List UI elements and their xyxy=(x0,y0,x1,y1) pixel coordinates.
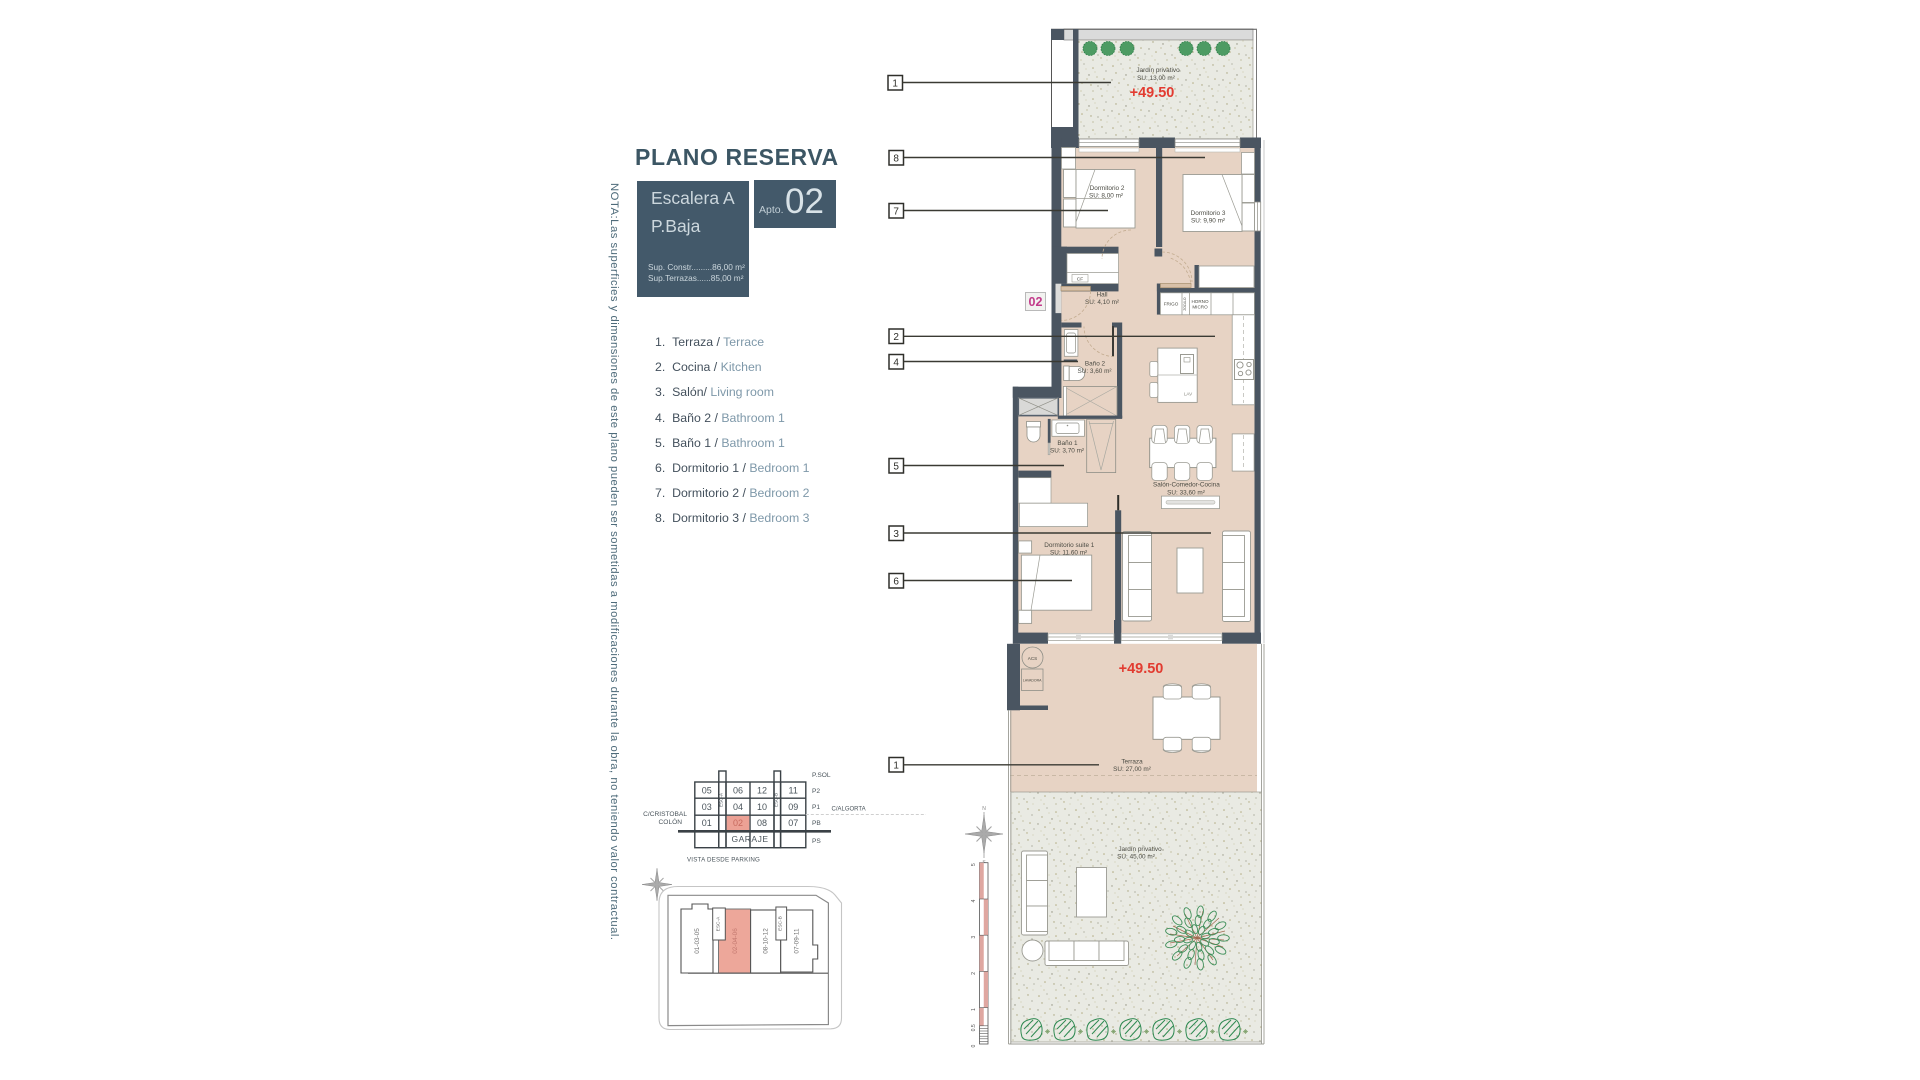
svg-text:Terraza: Terraza xyxy=(1121,759,1143,766)
svg-text:ACS: ACS xyxy=(1028,656,1037,661)
svg-text:SU: 33,60 m²: SU: 33,60 m² xyxy=(1167,490,1205,497)
svg-text:1: 1 xyxy=(892,79,898,90)
svg-text:SU: 3,60 m²: SU: 3,60 m² xyxy=(1077,368,1111,375)
svg-text:08-10-12: 08-10-12 xyxy=(763,928,770,954)
svg-text:5: 5 xyxy=(971,863,977,866)
svg-text:COLÓN: COLÓN xyxy=(659,817,683,826)
svg-text:HORNO: HORNO xyxy=(1191,299,1209,304)
svg-text:07-09-11: 07-09-11 xyxy=(794,928,801,954)
svg-text:SU: 8,00 m²: SU: 8,00 m² xyxy=(1089,193,1123,200)
svg-text:MICRO: MICRO xyxy=(1192,305,1208,310)
svg-text:C/CRISTOBAL: C/CRISTOBAL xyxy=(643,811,687,818)
svg-text:FRIGO: FRIGO xyxy=(1164,302,1179,307)
svg-text:PS: PS xyxy=(812,838,821,845)
svg-text:Jardín privativo: Jardín privativo xyxy=(1136,67,1180,74)
svg-text:3: 3 xyxy=(971,936,977,939)
svg-text:Baño 2: Baño 2 xyxy=(1085,361,1106,368)
svg-text:05: 05 xyxy=(702,786,712,796)
svg-text:CF: CF xyxy=(1077,277,1083,283)
svg-text:2: 2 xyxy=(971,972,977,975)
svg-text:09: 09 xyxy=(788,802,798,812)
svg-text:SU: 45,00 m²: SU: 45,00 m² xyxy=(1117,854,1155,861)
svg-text:ESC-B: ESC-B xyxy=(778,916,784,931)
svg-text:Dormitorio 3: Dormitorio 3 xyxy=(1191,210,1226,217)
svg-text:C/ALGORTA: C/ALGORTA xyxy=(832,807,866,813)
svg-text:P.SOL: P.SOL xyxy=(812,772,831,779)
svg-text:06: 06 xyxy=(733,786,743,796)
svg-text:04: 04 xyxy=(733,802,743,812)
svg-text:Baño 1: Baño 1 xyxy=(1057,440,1078,447)
svg-text:4: 4 xyxy=(893,358,899,369)
svg-text:10: 10 xyxy=(757,802,767,812)
svg-text:01-03-05: 01-03-05 xyxy=(694,928,701,954)
svg-text:8: 8 xyxy=(893,154,899,165)
svg-text:08: 08 xyxy=(757,818,767,828)
svg-text:SU: 9,90 m²: SU: 9,90 m² xyxy=(1191,218,1225,225)
svg-text:SU: 27,00 m²: SU: 27,00 m² xyxy=(1113,766,1151,773)
svg-text:12: 12 xyxy=(757,786,767,796)
svg-text:ESC-B: ESC-B xyxy=(774,793,779,807)
svg-text:P2: P2 xyxy=(812,788,820,795)
svg-text:Jardín privativo: Jardín privativo xyxy=(1118,846,1162,853)
svg-text:ESC-A: ESC-A xyxy=(719,792,724,807)
svg-text:ESC-A: ESC-A xyxy=(716,916,722,931)
svg-text:02-04-06: 02-04-06 xyxy=(732,928,739,954)
svg-text:Hall: Hall xyxy=(1096,292,1107,299)
svg-text:03: 03 xyxy=(702,802,712,812)
svg-text:SU: 13,00 m²: SU: 13,00 m² xyxy=(1137,75,1175,82)
svg-text:1: 1 xyxy=(971,1008,977,1011)
svg-text:11: 11 xyxy=(789,786,798,796)
svg-text:Dormitorio 2: Dormitorio 2 xyxy=(1090,185,1125,192)
svg-text:07: 07 xyxy=(788,818,798,828)
svg-text:+49.50: +49.50 xyxy=(1119,661,1164,677)
svg-text:02: 02 xyxy=(733,818,743,828)
svg-text:+49.50: +49.50 xyxy=(1130,85,1175,101)
svg-text:VISTA DESDE PARKING: VISTA DESDE PARKING xyxy=(687,857,760,864)
svg-text:2: 2 xyxy=(893,332,899,343)
svg-text:5: 5 xyxy=(893,462,899,473)
svg-text:4: 4 xyxy=(971,899,977,902)
svg-text:0: 0 xyxy=(971,1044,977,1047)
svg-text:SU: 4,10 m²: SU: 4,10 m² xyxy=(1085,299,1119,306)
svg-text:ZOCALO: ZOCALO xyxy=(1183,297,1187,311)
svg-text:Salón-Comedor-Cocina: Salón-Comedor-Cocina xyxy=(1153,482,1220,489)
svg-text:1: 1 xyxy=(893,761,899,772)
svg-text:0.5: 0.5 xyxy=(971,1024,977,1031)
svg-text:SU: 3,70 m²: SU: 3,70 m² xyxy=(1050,447,1084,454)
svg-text:LAV: LAV xyxy=(1184,392,1193,397)
svg-text:6: 6 xyxy=(893,577,899,588)
svg-text:Dormitorio suite 1: Dormitorio suite 1 xyxy=(1044,542,1095,549)
svg-text:01: 01 xyxy=(702,818,712,828)
svg-text:3: 3 xyxy=(893,529,899,540)
svg-text:GARAJE: GARAJE xyxy=(731,834,768,844)
svg-text:7: 7 xyxy=(893,207,899,218)
svg-text:N: N xyxy=(982,806,986,812)
svg-text:PB: PB xyxy=(812,820,821,827)
svg-text:P1: P1 xyxy=(812,804,820,811)
svg-text:02: 02 xyxy=(1029,295,1043,309)
svg-text:LAVADORA: LAVADORA xyxy=(1023,679,1042,683)
